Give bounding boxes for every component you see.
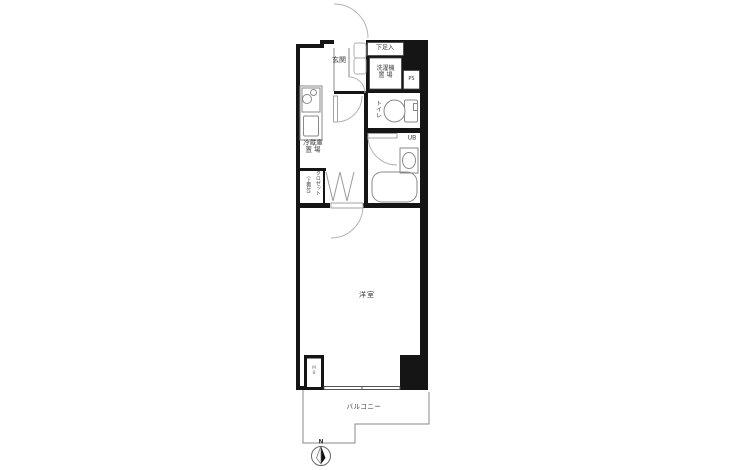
window-icon	[324, 387, 400, 390]
bathtub-icon	[372, 172, 417, 202]
toilet-door-arc	[336, 96, 362, 122]
closet-bifold-doors-icon	[326, 172, 354, 201]
floor-plan-drawing	[0, 0, 730, 470]
compass-needle-dark	[321, 446, 326, 464]
toilet-label: トイレ	[374, 100, 381, 118]
toilet-door-leaf	[334, 96, 338, 122]
balcony-outline	[303, 390, 429, 443]
closet-label: クロゼット	[314, 171, 320, 196]
closet-note-label: （上棚付）	[305, 174, 310, 197]
compass-north-label: N	[318, 440, 323, 447]
service-boxes	[307, 43, 420, 388]
western-room-label: 洋室	[359, 291, 375, 299]
kitchen-counter	[300, 86, 322, 140]
shoe-cabinet-door-icon	[354, 43, 366, 58]
bath-fixtures	[372, 148, 418, 202]
unit-bath-label: UB	[408, 136, 417, 143]
meter-box-label: MB	[311, 366, 316, 376]
shoe-box-label: 下足入	[376, 46, 394, 53]
stove-burner-small-icon	[311, 90, 317, 96]
shoe-cabinet-door-icon	[354, 58, 366, 74]
washing-machine-label: 洗濯機 置 場	[376, 66, 394, 80]
room-door-arc	[331, 206, 363, 238]
stove-burner-large-icon	[303, 95, 312, 104]
washbasin-bowl-icon	[403, 153, 416, 169]
pipe-space-label: PS	[408, 77, 414, 83]
balcony-label: バルコニー	[347, 403, 382, 410]
floor-plan-canvas: 玄関 下足入 洗濯機 置 場 PS トイレ UB 冷蔵庫 置 場 クロゼット （…	[0, 0, 730, 470]
compass-icon	[312, 446, 331, 466]
compass-needle-light	[317, 446, 322, 464]
unit-bath-door-leaf	[368, 134, 397, 139]
toilet-door	[334, 96, 363, 122]
sink-icon	[304, 116, 319, 136]
toilet-fixture-icon	[384, 100, 418, 122]
entrance-label: 玄関	[332, 56, 346, 64]
partition-lines	[334, 48, 349, 91]
hall-door-arc	[349, 77, 365, 93]
refrigerator-label: 冷蔵庫 置 場	[303, 140, 323, 155]
unit-bath-door-arc	[368, 136, 397, 165]
entrance-door	[334, 4, 368, 93]
room-door-leaf	[331, 203, 363, 208]
unit-bath-door	[368, 134, 397, 166]
room-door	[331, 203, 363, 238]
entrance-door-arc	[334, 4, 368, 38]
